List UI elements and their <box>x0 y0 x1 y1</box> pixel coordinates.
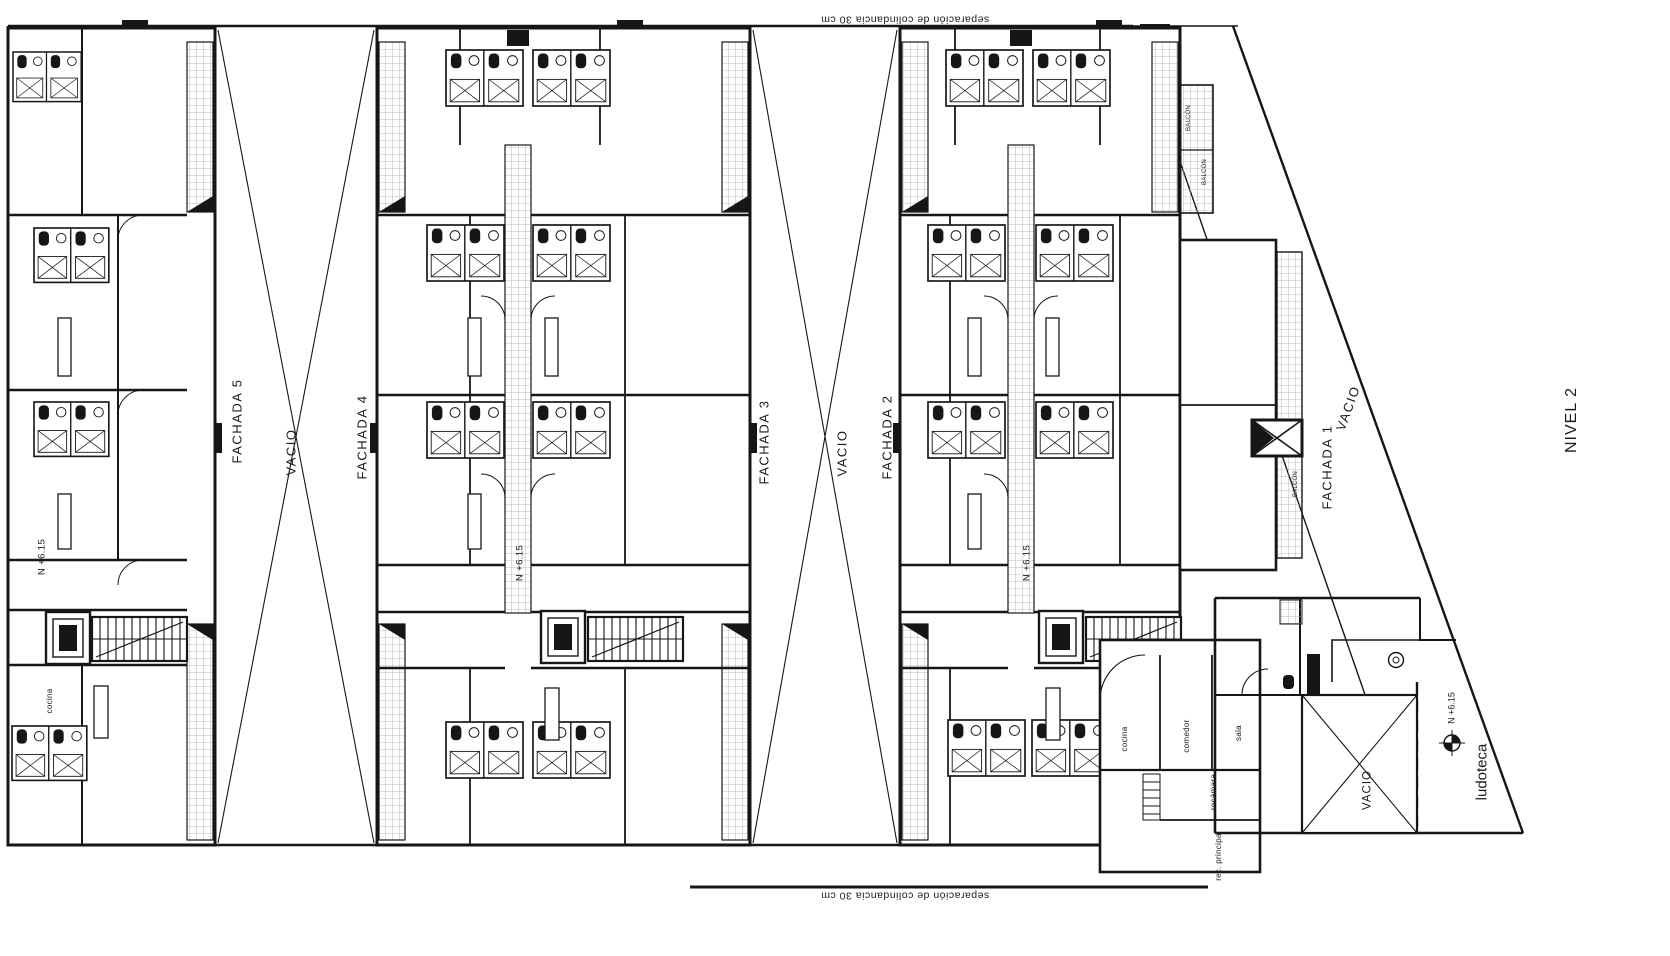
level-mark-ludoteca: N +6.15 <box>1448 692 1457 724</box>
comedor-label: comedor <box>1183 719 1191 752</box>
floor-plan-drawing <box>0 0 1670 956</box>
level-title: NIVEL 2 <box>1564 387 1580 453</box>
balcon-label-2: BALCÓN <box>1202 159 1208 185</box>
fachada-4-label: FACHADA 4 <box>356 394 369 479</box>
vacio-court-1-label: VACIO <box>285 429 298 476</box>
balcon-label-1: BALCÓN <box>1186 105 1192 131</box>
level-mark-building-a: N +6.15 <box>37 539 47 575</box>
cocina-right-label: cocina <box>1121 727 1129 752</box>
level-mark-building-b: N +6.15 <box>515 545 525 581</box>
level-mark-building-c: N +6.15 <box>1022 545 1032 581</box>
floor-plan-sheet: separación de colindancia 30 cm separaci… <box>0 0 1670 956</box>
fachada-3-label: FACHADA 3 <box>758 399 771 484</box>
balcon-label-3: BALCÓN <box>1293 471 1299 497</box>
fachada-1-label: FACHADA 1 <box>1321 424 1334 509</box>
cocina-left-label: cocina <box>46 689 54 714</box>
fachada-5-label: FACHADA 5 <box>231 378 244 463</box>
vacio-annex-label: VACIO <box>1362 770 1374 810</box>
fachada-2-label: FACHADA 2 <box>881 394 894 479</box>
recamara-label: recámara <box>1210 774 1218 810</box>
boundary-top-label: separación de colindancia 30 cm <box>821 14 989 25</box>
vacio-court-2-label: VACIO <box>836 430 849 477</box>
ludoteca-room-label: ludoteca <box>1475 744 1490 801</box>
boundary-bottom-label: separación de colindancia 30 cm <box>821 890 989 901</box>
rec-principal-label: rec. principal <box>1215 831 1223 881</box>
sala-label: sala <box>1235 725 1243 741</box>
